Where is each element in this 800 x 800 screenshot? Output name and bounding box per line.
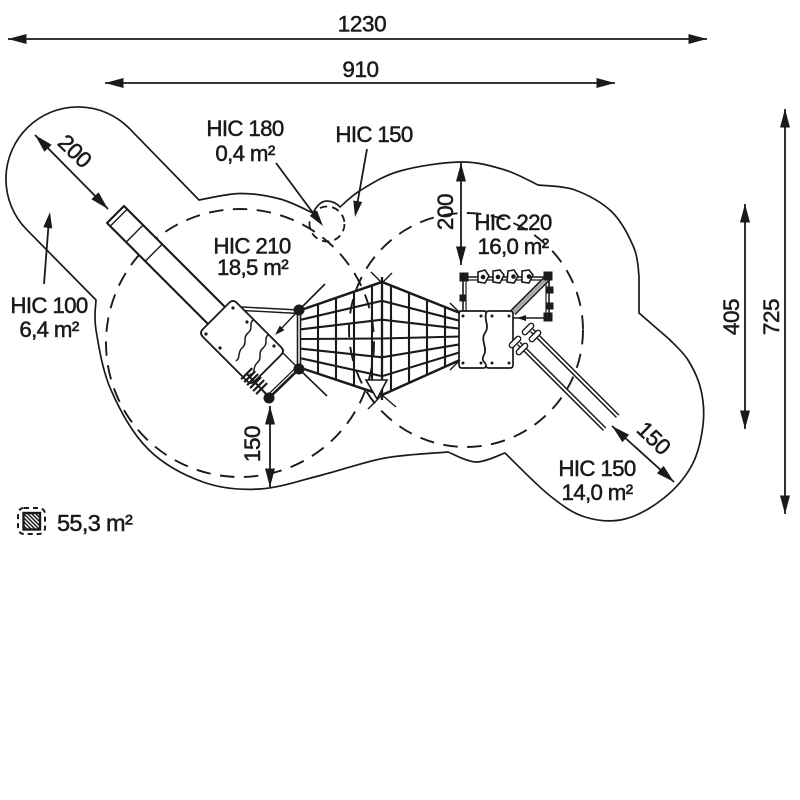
svg-text:14,0 m²: 14,0 m² — [561, 480, 632, 505]
svg-text:405: 405 — [719, 299, 744, 335]
svg-text:725: 725 — [759, 299, 784, 335]
svg-text:18,5 m²: 18,5 m² — [217, 255, 288, 280]
svg-text:0,4 m²: 0,4 m² — [215, 141, 275, 166]
svg-text:16,0 m²: 16,0 m² — [477, 234, 548, 259]
svg-text:HIC 150: HIC 150 — [335, 122, 412, 147]
svg-text:150: 150 — [240, 426, 265, 462]
svg-text:200: 200 — [433, 194, 458, 230]
svg-text:6,4 m²: 6,4 m² — [19, 317, 79, 342]
svg-text:HIC 220: HIC 220 — [474, 210, 551, 235]
svg-text:55,3 m²: 55,3 m² — [57, 510, 133, 536]
svg-text:910: 910 — [342, 57, 378, 82]
svg-text:HIC 150: HIC 150 — [558, 456, 635, 481]
svg-text:HIC 100: HIC 100 — [10, 293, 87, 318]
svg-text:HIC 180: HIC 180 — [206, 116, 283, 141]
svg-text:1230: 1230 — [338, 12, 386, 37]
